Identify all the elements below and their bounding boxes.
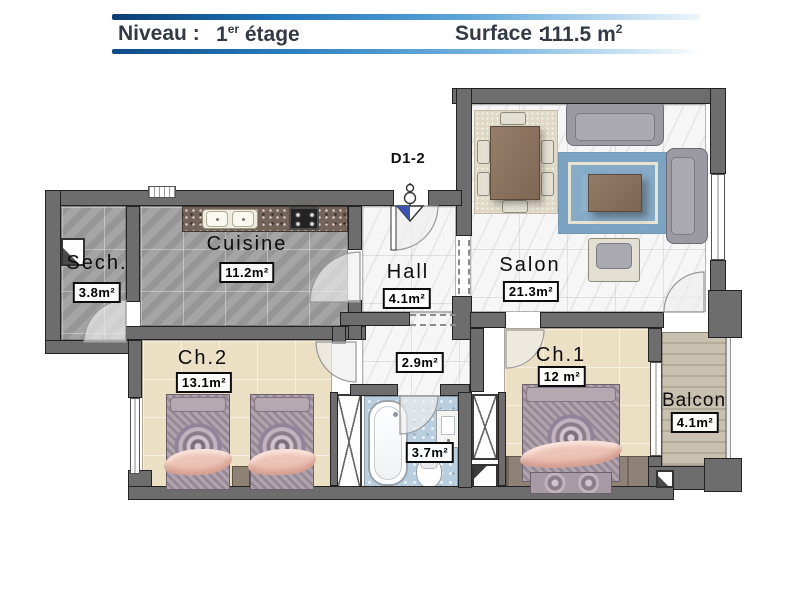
window xyxy=(148,186,176,198)
room-area-salon: 21.3m² xyxy=(503,281,559,302)
stove xyxy=(289,207,319,230)
room-area-ch1: 12 m² xyxy=(538,366,586,387)
wall-segment xyxy=(350,384,398,396)
bed xyxy=(250,394,314,490)
wall-segment xyxy=(126,326,366,340)
wall-segment xyxy=(452,88,726,104)
wall-segment xyxy=(348,206,362,250)
dining-chair xyxy=(500,112,526,125)
armchair xyxy=(588,238,640,282)
entrance-door-label: D1-2 xyxy=(391,150,426,167)
dining-chair xyxy=(477,140,490,164)
sink-basin xyxy=(232,211,254,227)
opening-dashed xyxy=(410,314,456,316)
room-area-balcon: 4.1m² xyxy=(671,412,719,433)
wall-segment xyxy=(45,340,141,354)
opening-dashed xyxy=(468,240,470,294)
room-area-ch2: 13.1m² xyxy=(176,372,232,393)
wall-segment xyxy=(452,296,472,340)
wall-niche xyxy=(656,470,674,488)
bathtub xyxy=(368,400,408,486)
room-label-balcon: Balcon xyxy=(662,390,726,412)
balcony-railing xyxy=(726,334,731,462)
room-label-ch2: Ch.2 xyxy=(178,347,228,370)
wall-segment xyxy=(710,88,726,174)
room-area-bathroom: 3.7m² xyxy=(406,442,454,463)
coffee-table xyxy=(588,174,642,212)
room-label-cuisine: Cuisine xyxy=(207,233,288,256)
wall-segment xyxy=(708,290,742,338)
wall-segment xyxy=(50,190,394,206)
wall-segment xyxy=(648,328,662,362)
wall-segment xyxy=(126,206,140,302)
double-bed xyxy=(522,384,620,482)
sink-basin xyxy=(206,211,228,227)
room-label-ch1: Ch.1 xyxy=(536,344,586,367)
wall-segment xyxy=(456,88,472,236)
dining-chair xyxy=(541,172,554,196)
wall-segment xyxy=(470,328,484,392)
wall-segment xyxy=(540,312,664,328)
wall-segment xyxy=(330,392,338,486)
service-hatch xyxy=(472,464,498,488)
window xyxy=(130,398,140,474)
window xyxy=(711,174,725,260)
room-area-sechoir: 3.8m² xyxy=(73,282,121,303)
wall-segment xyxy=(458,392,472,488)
wall-segment xyxy=(45,190,61,354)
room-area-degagement: 2.9m² xyxy=(396,352,444,373)
opening-dashed xyxy=(410,324,456,326)
wall-segment xyxy=(128,340,142,398)
bed xyxy=(166,394,230,490)
dining-chair xyxy=(541,140,554,164)
room-label-sechoir: Sech. xyxy=(66,252,127,275)
sofa xyxy=(666,148,708,244)
room-area-cuisine: 11.2m² xyxy=(219,262,274,283)
room-label-salon: Salon xyxy=(499,254,560,277)
entrance-marker-circle xyxy=(405,193,416,204)
room-label-hall: Hall xyxy=(387,261,429,284)
wall-segment xyxy=(332,326,346,344)
dining-table xyxy=(490,126,540,200)
opening-dashed xyxy=(458,240,460,294)
window xyxy=(650,362,662,456)
sofa xyxy=(566,100,664,146)
floorplan-page: { "header": { "level_label": "Niveau :",… xyxy=(0,0,800,600)
wall-segment xyxy=(704,458,742,492)
wall-segment xyxy=(470,312,506,328)
wall-segment xyxy=(340,312,410,326)
closet xyxy=(472,394,498,460)
kitchen-sink xyxy=(202,209,258,229)
closet xyxy=(336,394,362,490)
entrance-marker-circle xyxy=(407,185,414,192)
dining-chair xyxy=(502,200,528,213)
bed-bench xyxy=(530,472,612,494)
floor-plan: D1-2 Cuisine 11.2m² Hall 4.1m² Salon 21.… xyxy=(0,0,800,600)
wall-segment xyxy=(428,190,462,206)
wall-segment xyxy=(498,392,506,486)
room-area-hall: 4.1m² xyxy=(383,288,431,309)
dining-chair xyxy=(477,172,490,196)
